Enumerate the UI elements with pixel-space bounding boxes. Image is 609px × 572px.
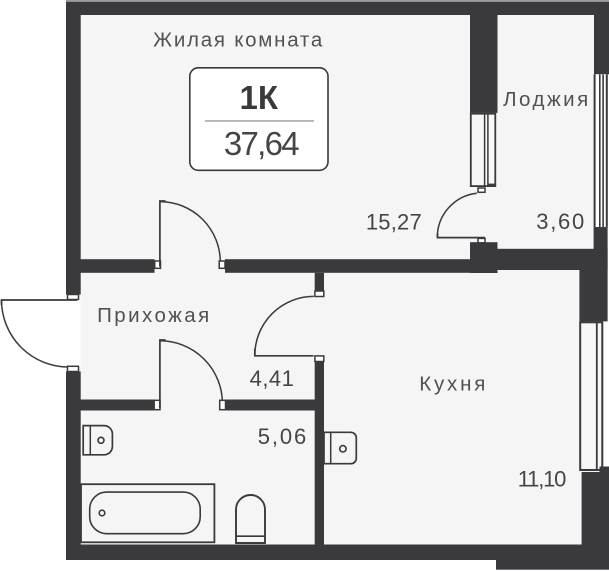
svg-text:37,64: 37,64 bbox=[224, 125, 299, 162]
svg-text:4,41: 4,41 bbox=[250, 366, 295, 391]
svg-text:Лоджия: Лоджия bbox=[503, 88, 591, 111]
svg-text:1К: 1К bbox=[240, 79, 279, 116]
svg-text:Кухня: Кухня bbox=[419, 372, 488, 395]
svg-text:5,06: 5,06 bbox=[258, 424, 308, 449]
svg-text:Жилая комната: Жилая комната bbox=[153, 28, 324, 51]
svg-text:15,27: 15,27 bbox=[366, 210, 422, 235]
svg-text:3,60: 3,60 bbox=[536, 209, 586, 234]
svg-text:Прихожая: Прихожая bbox=[97, 304, 212, 327]
svg-text:11,10: 11,10 bbox=[518, 467, 566, 492]
